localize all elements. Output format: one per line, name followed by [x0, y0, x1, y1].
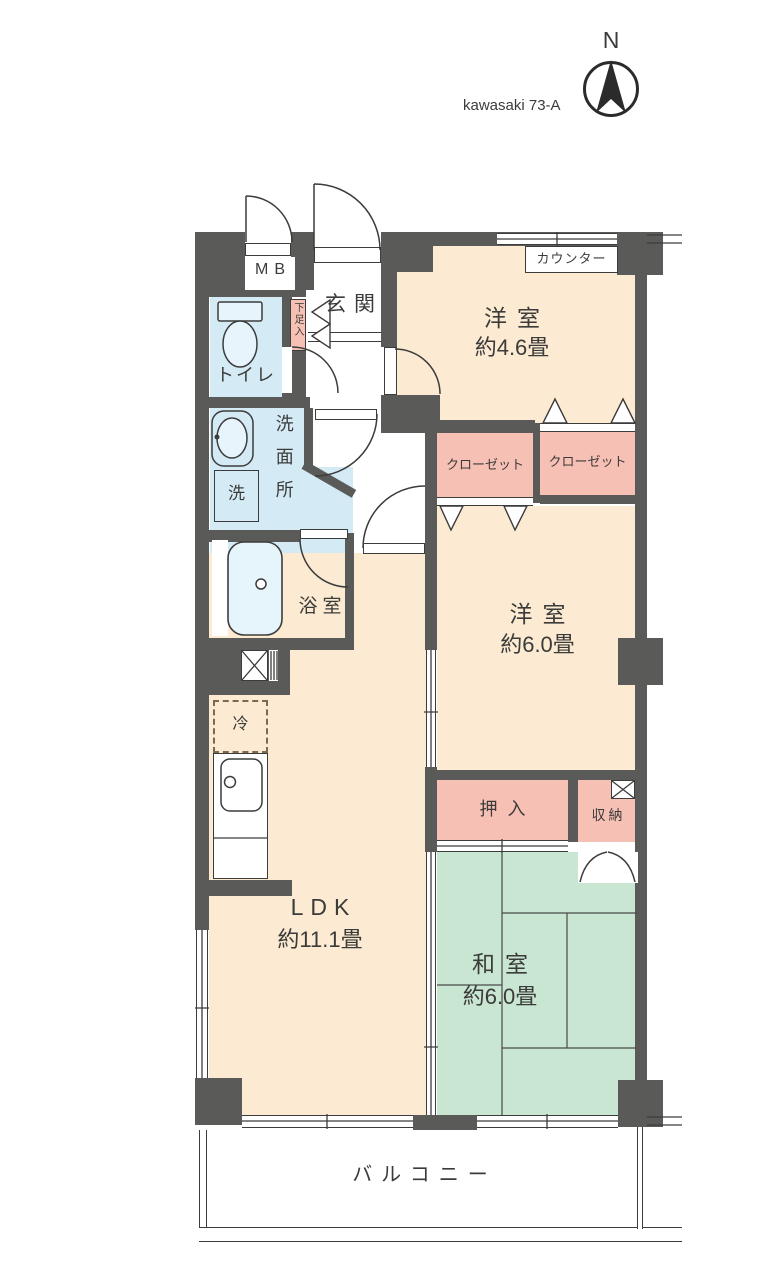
- closet-left-tri-1: [440, 506, 463, 530]
- closet-right-tri-1: [543, 399, 567, 423]
- ps-hatch-lines: [271, 651, 277, 680]
- closet-right-tri-2: [611, 399, 635, 423]
- ldk-size: 約11.1畳: [240, 928, 400, 952]
- plan-code: kawasaki 73-A: [463, 98, 573, 115]
- genkan-bifold-2: [312, 324, 330, 348]
- closet-left-label: クローゼット: [437, 458, 533, 472]
- closet-left-tri-2: [504, 506, 527, 530]
- mb-label: MB: [245, 261, 295, 279]
- basin-faucet: [215, 435, 220, 440]
- genkan-label: 玄関: [306, 293, 394, 316]
- western60-name: 洋室: [440, 602, 635, 627]
- bathtub-drain: [256, 579, 266, 589]
- bath-label: 浴室: [283, 597, 357, 618]
- toilet-bowl: [223, 321, 257, 367]
- storage-double-door-arcs: [580, 852, 635, 882]
- western60-size: 約6.0畳: [440, 633, 635, 657]
- storage-ps-x: [612, 781, 634, 798]
- western46-size: 約4.6畳: [432, 336, 592, 360]
- ps-x: [242, 651, 267, 680]
- washitsu-size: 約6.0畳: [400, 985, 600, 1009]
- floor-plan: N kawasaki 73-A MB 玄関 下足入 トイレ 洗面所 洗 浴室 洋…: [0, 0, 764, 1268]
- bath-door-arc: [300, 539, 348, 587]
- laundry-label: 洗: [214, 485, 259, 504]
- toilet-tank: [218, 302, 262, 321]
- fridge-label: 冷: [213, 716, 268, 734]
- compass-n-label: N: [596, 28, 626, 53]
- closet-right-label: クローゼット: [540, 455, 635, 469]
- counter-label: カウンター: [525, 252, 618, 266]
- kitchen-faucet: [225, 777, 236, 788]
- western46-name: 洋室: [432, 306, 592, 331]
- genkan-door-arc: [314, 184, 380, 250]
- bathtub: [228, 542, 282, 635]
- shoe-box-label: 下足入: [292, 302, 303, 338]
- toilet-door-arc: [292, 347, 338, 393]
- balcony-label: バルコニー: [250, 1164, 590, 1186]
- oshiire-label: 押入: [437, 800, 568, 820]
- basin-bowl: [217, 418, 247, 458]
- toilet-label: トイレ: [210, 366, 282, 386]
- hall-door-a-arc: [315, 414, 377, 476]
- plan-linework: [0, 0, 764, 1268]
- hall-door-b-arc: [363, 486, 425, 548]
- washroom-label: 洗面所: [273, 414, 293, 513]
- mb-door-arc: [246, 196, 292, 242]
- storage-label: 収納: [578, 808, 636, 823]
- washitsu-name: 和室: [400, 952, 600, 977]
- ldk-name: LDK: [240, 895, 400, 920]
- compass: [585, 60, 638, 116]
